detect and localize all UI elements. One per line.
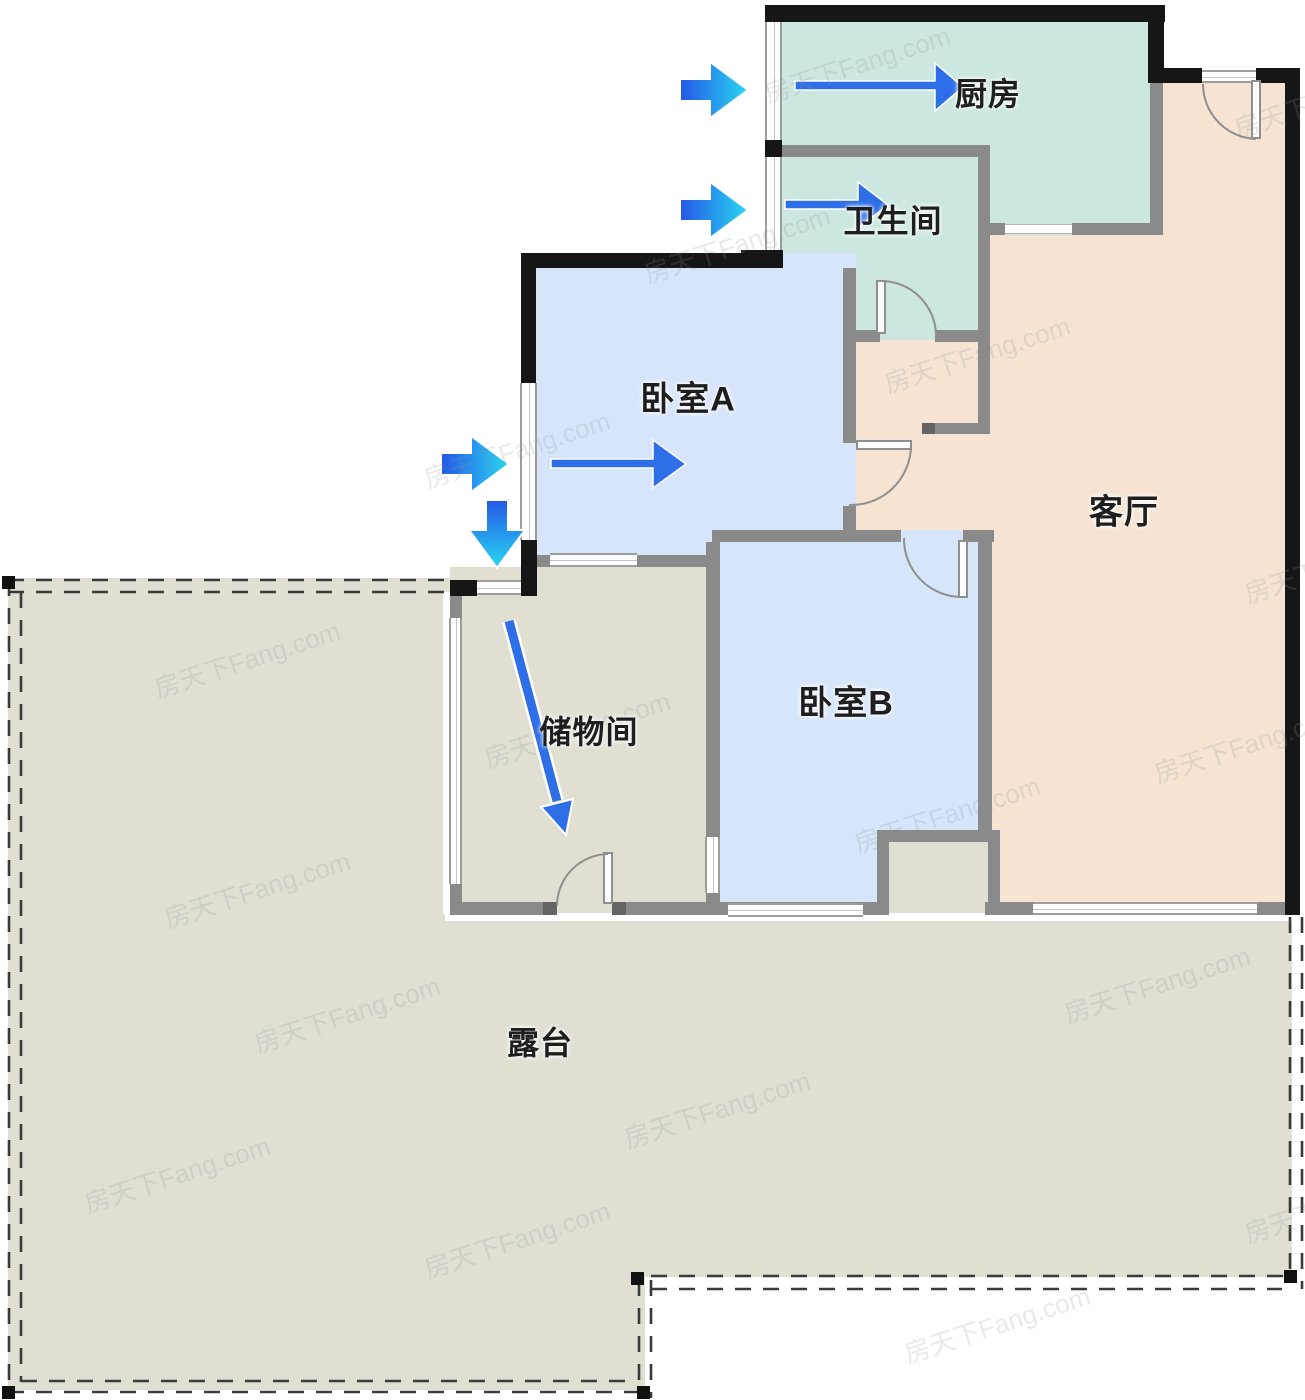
kitchen-label: 厨房 (955, 69, 1021, 115)
bathroom-door-arc (881, 281, 936, 336)
bedroom-b-door-arc (904, 538, 963, 597)
bedroom-a-label: 卧室A (640, 372, 736, 421)
airflow-arrow-kitchen-inside-icon (795, 63, 963, 111)
entrance-door-arc (1203, 84, 1256, 139)
airflow-arrow-bedroom-a-outside-icon (441, 436, 509, 492)
bathroom-label: 卫生间 (843, 196, 942, 242)
storage-label: 储物间 (539, 707, 638, 753)
plan-overlay (0, 0, 1305, 1400)
terrace-label: 露台 (507, 1018, 573, 1064)
floor-plan: 厨房 卫生间 卧室A 客厅 卧室B 储物间 露台 房天下Fang.com房天下F… (0, 0, 1305, 1400)
bedroom-b-label: 卧室B (798, 676, 894, 725)
terrace-dashed-border (8, 580, 1302, 1398)
bedroom-a-door-arc (849, 446, 911, 505)
airflow-arrow-terrace-down-icon (469, 500, 525, 568)
airflow-arrow-kitchen-outside-icon (680, 62, 748, 118)
airflow-arrow-bedroom-a-inside-icon (551, 440, 686, 488)
storage-door-arc (557, 854, 608, 905)
airflow-arrow-bathroom-outside-icon (680, 182, 748, 238)
living-room-label: 客厅 (1089, 485, 1159, 534)
